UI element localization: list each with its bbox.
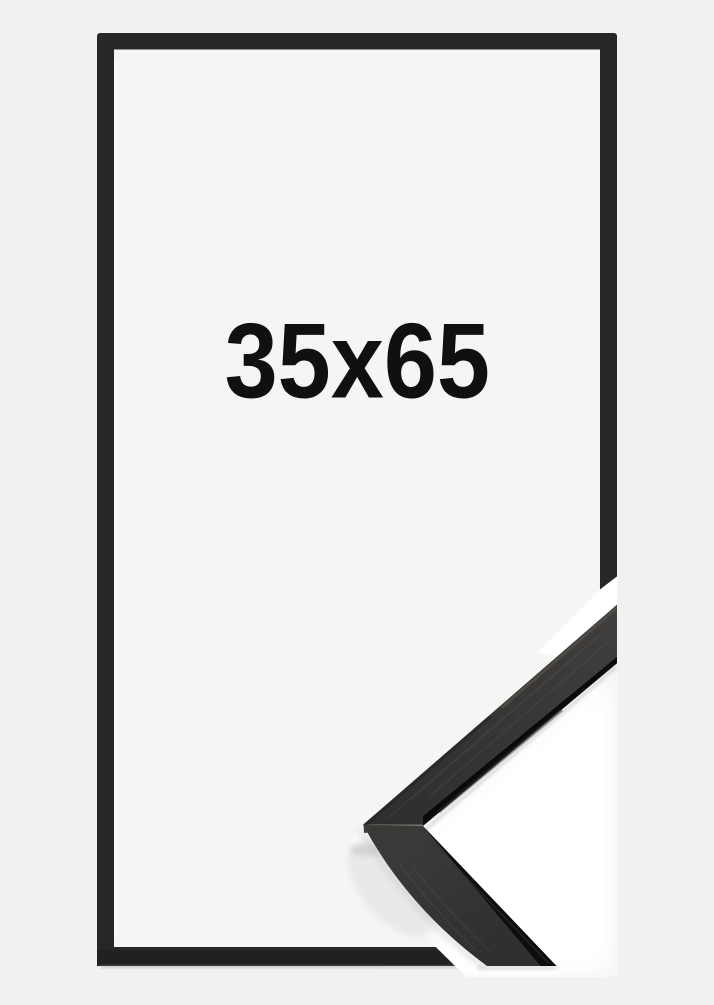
svg-text:35x65: 35x65	[225, 301, 490, 420]
